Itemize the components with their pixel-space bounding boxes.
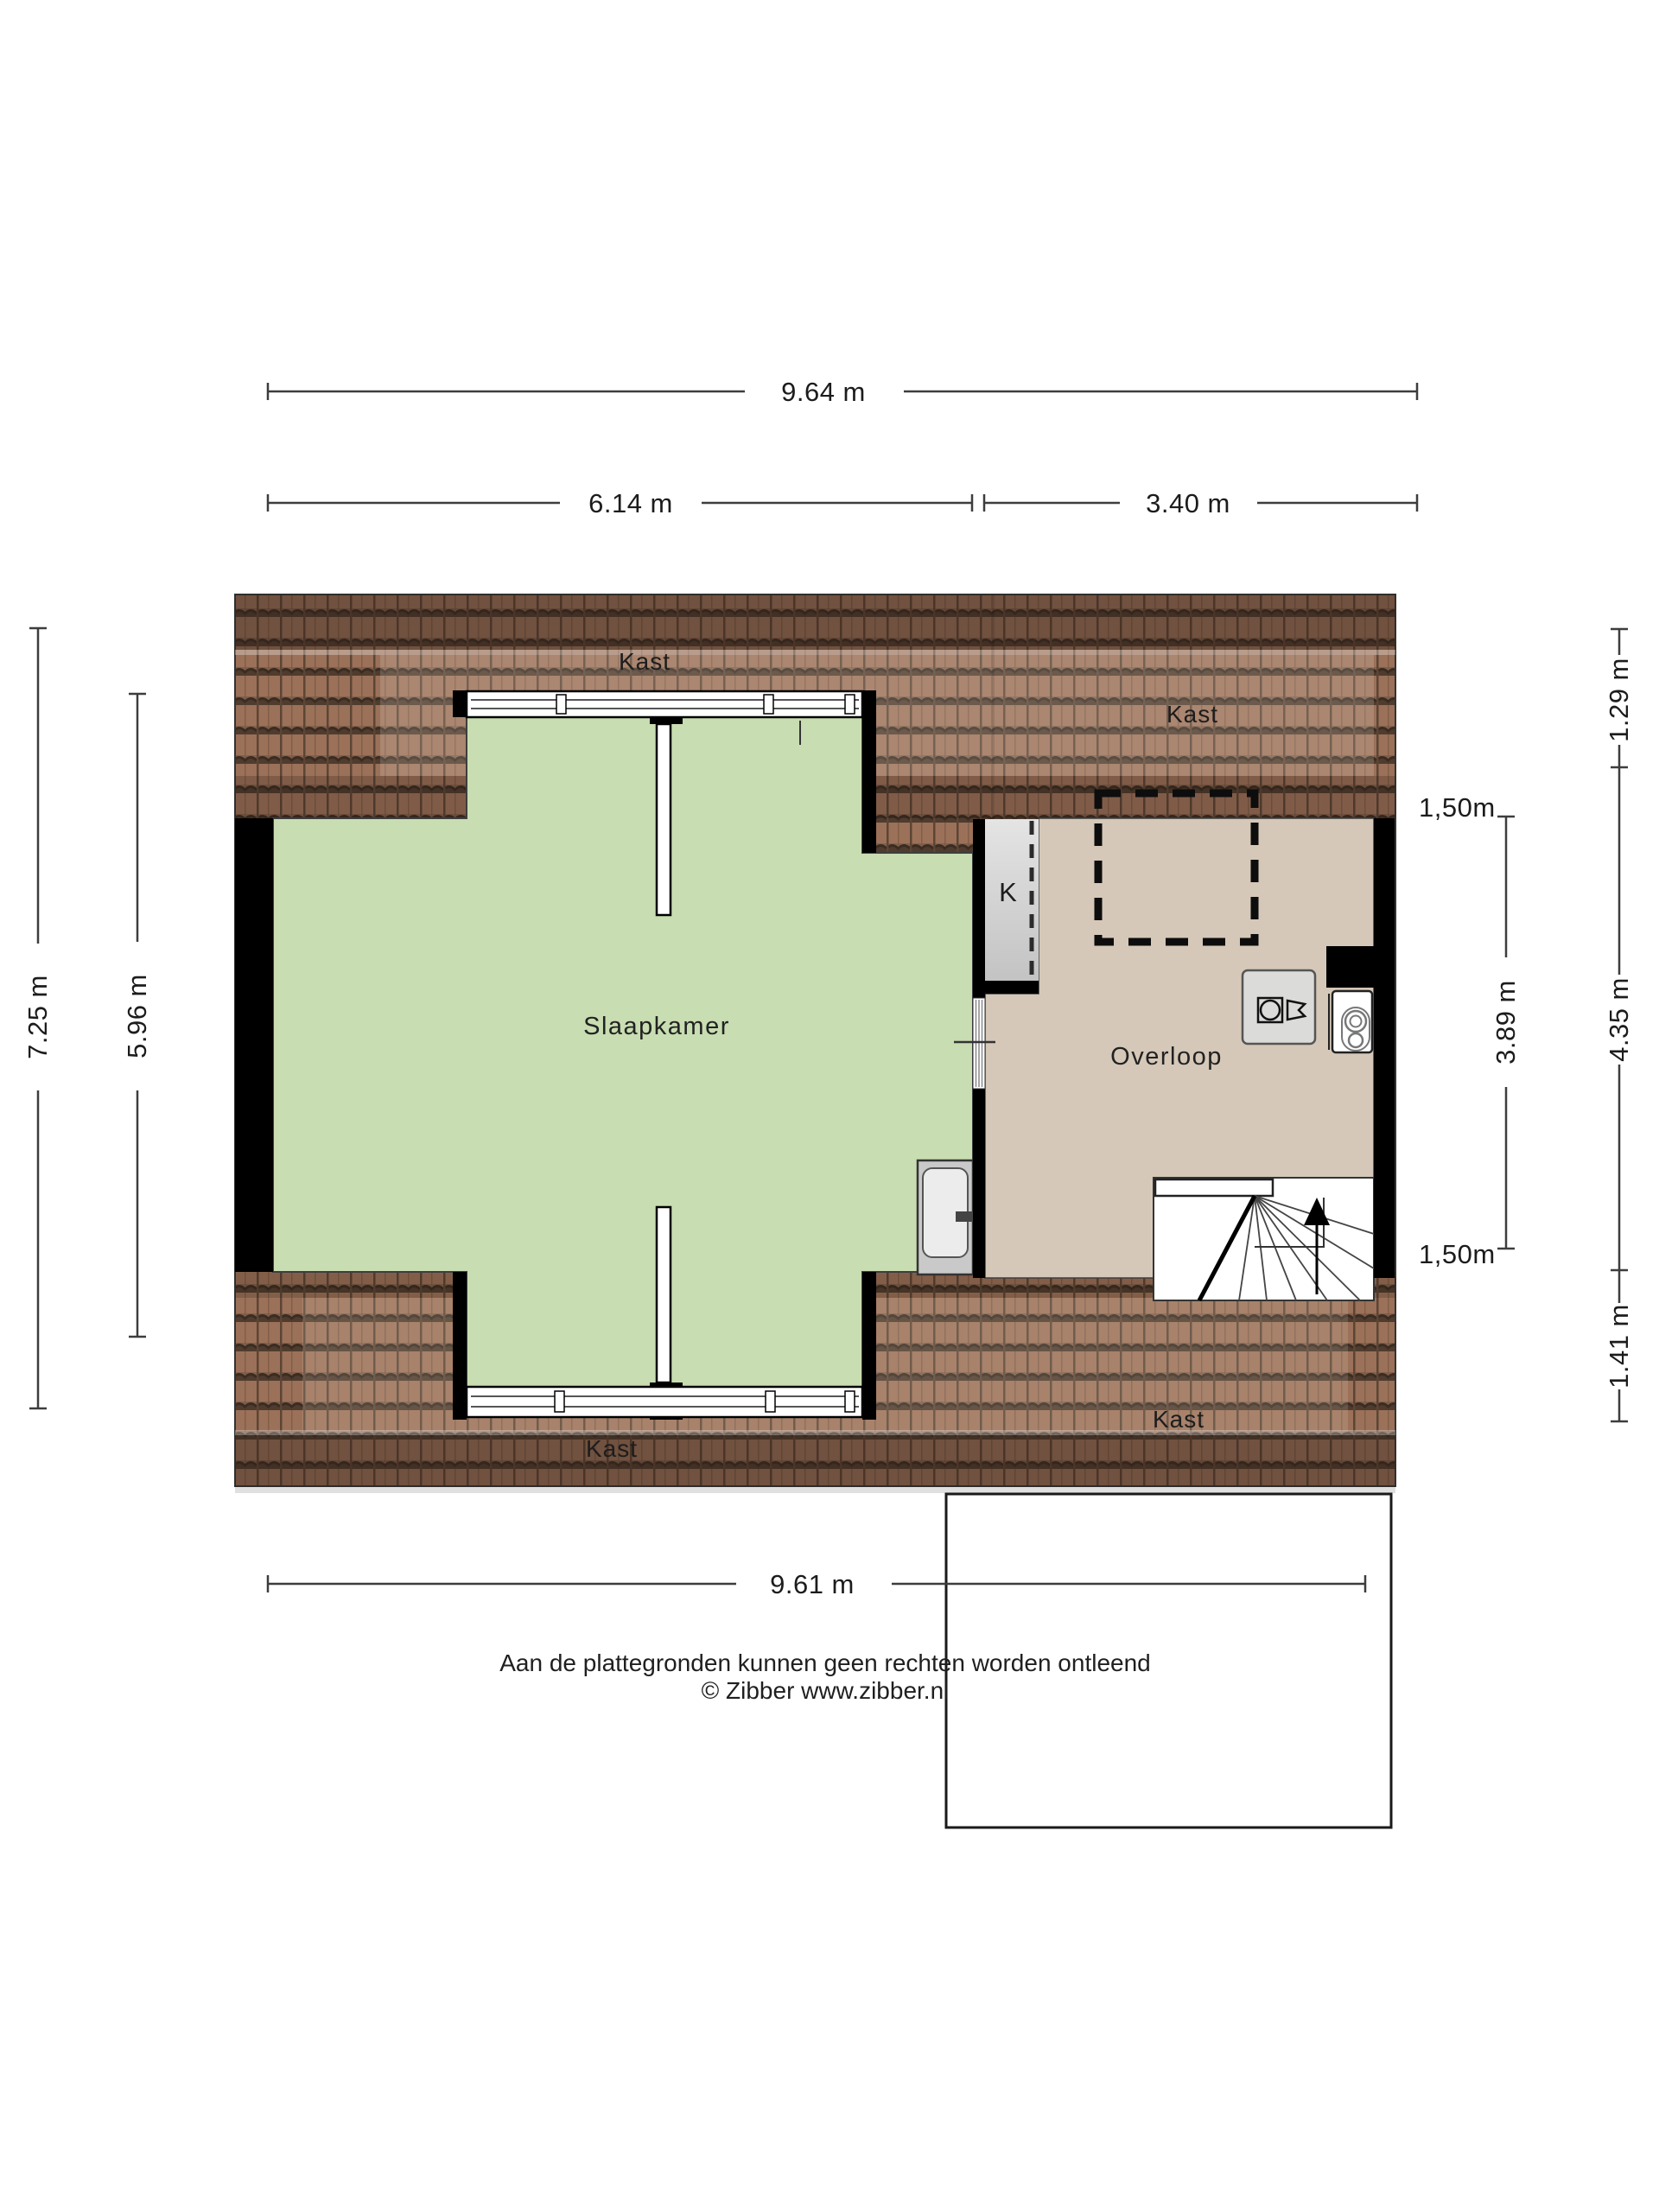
dim-left-inner: 5.96 m bbox=[122, 694, 152, 1337]
dim-right-outer: 1.29 m 4.35 m 1.41 m bbox=[1604, 629, 1634, 1421]
window-bottom bbox=[467, 1387, 862, 1417]
dim-left-outer: 7.25 m bbox=[22, 628, 53, 1408]
dim-top-right: 3.40 m bbox=[984, 488, 1417, 518]
dim-bottom-total-label: 9.61 m bbox=[770, 1569, 855, 1599]
landing-label: Overloop bbox=[1110, 1043, 1223, 1071]
wall-boiler-nook bbox=[1326, 946, 1376, 988]
boiler-icon bbox=[1329, 991, 1372, 1052]
wall-post-bottom-right bbox=[862, 1272, 876, 1420]
floorplan-canvas: Slaapkamer Overloop Kast Kast Kast Kast … bbox=[0, 0, 1659, 2212]
wall-landing-right bbox=[1374, 818, 1395, 1278]
roof-drop-shadow bbox=[235, 1486, 1395, 1493]
closet-k-bottom-wall bbox=[985, 981, 1039, 994]
bedroom-label: Slaapkamer bbox=[583, 1013, 730, 1040]
roof-ridge-highlight-bottom bbox=[235, 1430, 1395, 1435]
dim-right-inner-label: 3.89 m bbox=[1491, 980, 1521, 1065]
stairs-landing bbox=[1155, 1179, 1273, 1196]
dim-top-total-label: 9.64 m bbox=[781, 377, 866, 407]
dim-top-total: 9.64 m bbox=[268, 377, 1417, 407]
closet-k-label: K bbox=[999, 877, 1018, 907]
roof-ridge-shadow-top bbox=[235, 594, 1395, 650]
dim-left-outer-label: 7.25 m bbox=[22, 975, 53, 1059]
dim-right-inner: 3.89 m bbox=[1491, 817, 1521, 1249]
dim-left-inner-label: 5.96 m bbox=[122, 974, 152, 1058]
dim-bottom-total: 9.61 m bbox=[268, 1569, 1365, 1599]
dim-top-left-label: 6.14 m bbox=[588, 488, 673, 518]
dim-right-bottom-label: 1.41 m bbox=[1604, 1304, 1634, 1389]
partition-top bbox=[657, 724, 671, 915]
dim-right-top-label: 1.29 m bbox=[1604, 658, 1634, 742]
kast-label-bottom-right: Kast bbox=[1153, 1406, 1205, 1433]
partition-bottom bbox=[657, 1207, 671, 1382]
wall-post-top-right bbox=[862, 690, 876, 853]
stairs bbox=[1154, 1178, 1374, 1300]
disclaimer-line2: © Zibber www.zibber.nl bbox=[702, 1677, 950, 1704]
kast-label-top-right: Kast bbox=[1166, 701, 1218, 728]
dim-top-right-label: 3.40 m bbox=[1146, 488, 1230, 518]
wall-left-gable bbox=[235, 818, 273, 1272]
dim-right-middle-label: 4.35 m bbox=[1604, 977, 1634, 1062]
roof-ridge-highlight-top bbox=[235, 650, 1395, 655]
kast-label-bottom-left: Kast bbox=[586, 1435, 638, 1462]
headroom-bottom-label: 1,50m bbox=[1419, 1239, 1496, 1269]
kast-label-top-left: Kast bbox=[619, 648, 671, 675]
dim-top-left: 6.14 m bbox=[268, 488, 972, 518]
disclaimer-line1: Aan de plattegronden kunnen geen rechten… bbox=[499, 1649, 1150, 1676]
headroom-top-label: 1,50m bbox=[1419, 792, 1496, 823]
washing-machine-icon bbox=[1243, 970, 1315, 1044]
bath-icon bbox=[918, 1160, 973, 1274]
wall-post-bottom-left bbox=[453, 1272, 467, 1420]
wall-bedroom-right-lower bbox=[973, 1089, 985, 1278]
roof-hip-line bbox=[992, 594, 995, 818]
wall-bedroom-right-upper bbox=[973, 819, 985, 998]
wall-post-top-left bbox=[453, 690, 467, 717]
roof-ridge-shadow-bottom bbox=[235, 1435, 1395, 1486]
